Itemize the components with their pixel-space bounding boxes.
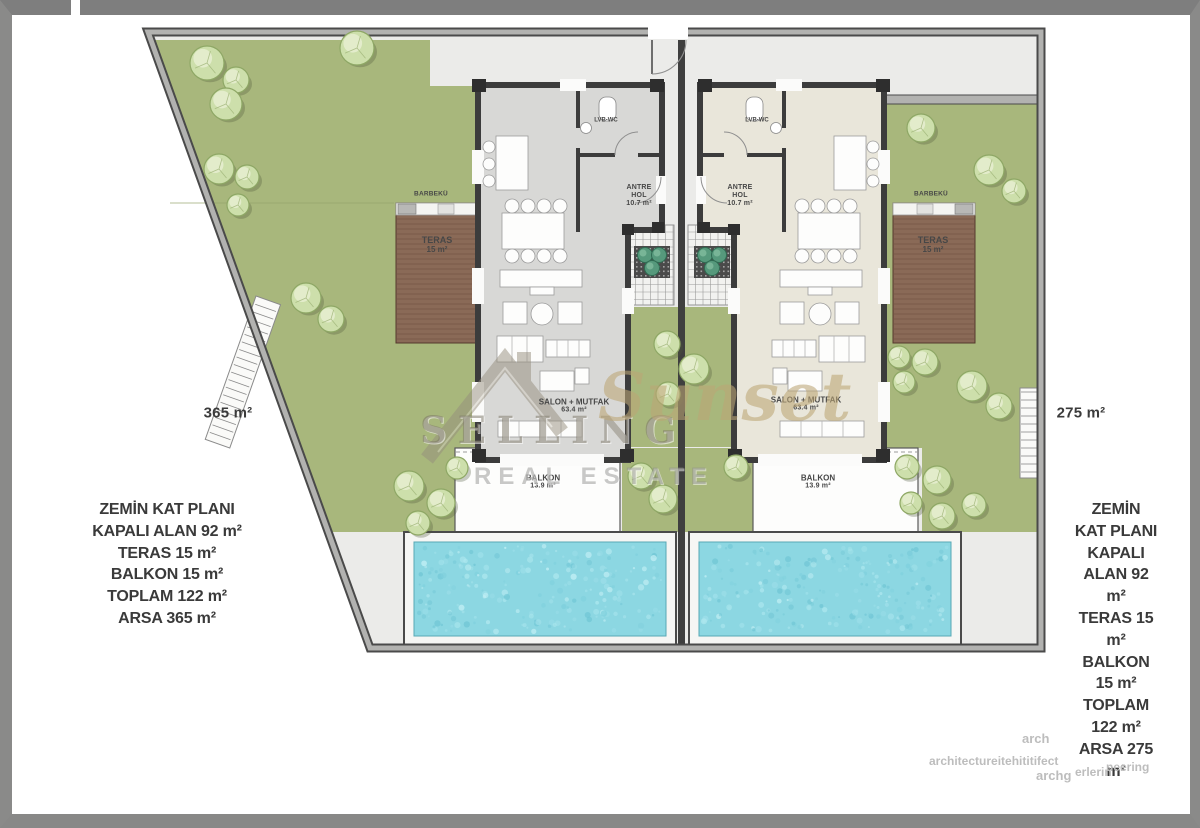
right-terrace-label: TERAS 15 m²	[918, 235, 949, 255]
left-wc-label: LVB-WC	[594, 118, 618, 125]
frame-notch	[71, 0, 80, 15]
summary-line: ZEMİN KAT PLANI	[1074, 499, 1158, 543]
summary-line: TERAS 15 m²	[92, 543, 242, 565]
left-pool	[404, 532, 676, 646]
left-terrace-deck	[396, 203, 478, 343]
footer-fragment: archg	[1036, 768, 1071, 783]
right-stairwell	[688, 225, 734, 305]
left-lot-area-label: 365 m²	[204, 404, 253, 421]
left-barbecue-label: BARBEKÜ	[414, 190, 448, 197]
summary-line: TOPLAM 122 m²	[92, 586, 242, 608]
right-garden-wall	[884, 95, 1041, 104]
left-balcony-label: BALKON 13.9 m²	[526, 473, 560, 490]
left-stairwell	[628, 225, 674, 305]
right-balcony-label: BALKON 13.9 m²	[801, 473, 835, 490]
summary-line: TOPLAM 122 m²	[1074, 695, 1158, 739]
right-pool	[689, 532, 961, 646]
footer-fragment: architectureitehititifect	[929, 754, 1058, 768]
right-terrace-deck	[893, 203, 975, 343]
left-terrace-label: TERAS 15 m²	[422, 235, 453, 255]
left-livingroom-label: SALON + MUTFAK 63.4 m²	[539, 397, 609, 414]
right-lot-area-label: 275 m²	[1057, 404, 1106, 421]
footer-fragment: neering	[1106, 760, 1149, 774]
left-unit-summary: ZEMİN KAT PLANI KAPALI ALAN 92 m² TERAS …	[92, 499, 242, 630]
summary-line: ZEMİN KAT PLANI	[92, 499, 242, 521]
summary-line: BALKON 15 m²	[1074, 652, 1158, 696]
right-livingroom-label: SALON + MUTFAK 63.4 m²	[771, 395, 841, 412]
right-hall-label: ANTRE HOL 10.7 m²	[727, 184, 753, 208]
right-unit-summary: ZEMİN KAT PLANI KAPALI ALAN 92 m² TERAS …	[1074, 499, 1158, 782]
right-wc-label: LVB-WC	[745, 118, 769, 125]
summary-line: KAPALI ALAN 92 m²	[1074, 543, 1158, 608]
summary-line: ARSA 365 m²	[92, 608, 242, 630]
summary-line: KAPALI ALAN 92 m²	[92, 521, 242, 543]
left-hall-label: ANTRE HOL 10.7 m²	[626, 184, 652, 208]
footer-fragment: arch	[1022, 731, 1049, 746]
floor-plan-page: BARBEKÜ BARBEKÜ TERAS 15 m² TERAS 15 m² …	[0, 0, 1200, 828]
summary-line: BALKON 15 m²	[92, 564, 242, 586]
right-barbecue-label: BARBEKÜ	[914, 190, 948, 197]
summary-line: TERAS 15 m²	[1074, 608, 1158, 652]
right-boundary-stairs	[1020, 388, 1038, 478]
